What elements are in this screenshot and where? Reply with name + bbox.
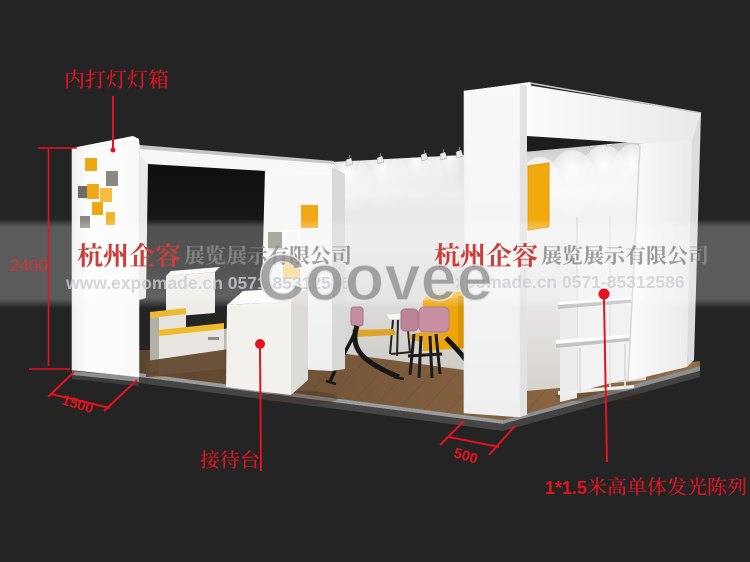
- svg-text:Coovee: Coovee: [258, 241, 493, 314]
- svg-text:1*1.5: 1*1.5: [545, 478, 587, 498]
- svg-text:2400: 2400: [10, 256, 48, 275]
